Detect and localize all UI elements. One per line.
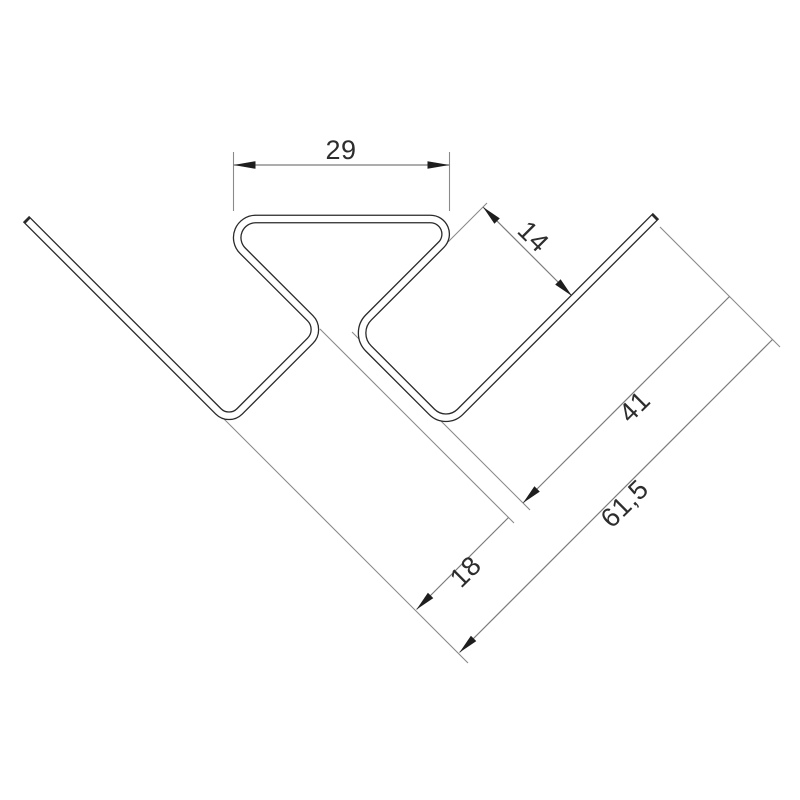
drawing-canvas: 29 14 41 61,5 18	[0, 0, 800, 800]
dimension-labels: 29 14 41 61,5 18	[325, 135, 656, 593]
arrow-29-right	[428, 161, 450, 169]
arrow-29-left	[234, 161, 256, 169]
ext-leg-end	[660, 227, 780, 347]
profile-outline	[26, 216, 656, 418]
dim-label-left-channel-width: 18	[444, 550, 487, 593]
ext-14-upper	[448, 203, 487, 242]
technical-drawing: 29 14 41 61,5 18	[0, 0, 800, 800]
dim-label-right-channel-width: 14	[512, 215, 555, 258]
ext-inner-wall	[320, 329, 514, 523]
dim-label-top-width: 29	[325, 135, 356, 165]
dim-label-right-leg-length: 41	[613, 385, 656, 428]
dim-label-overall-length: 61,5	[595, 474, 655, 534]
extension-lines	[215, 152, 780, 663]
arrowheads	[234, 161, 773, 652]
ext-left-leg	[215, 410, 468, 663]
dimension-lines	[234, 165, 773, 653]
